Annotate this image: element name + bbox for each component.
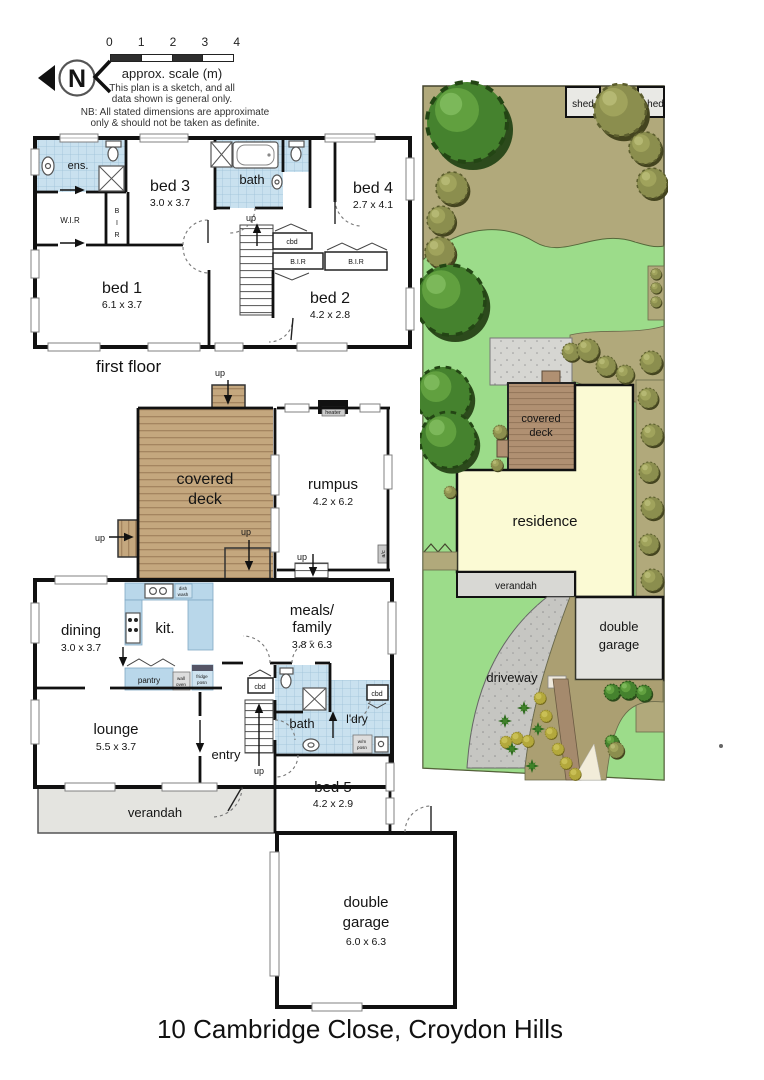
room-label-bath: bath [239, 172, 264, 187]
deck-bottom-steps [225, 548, 270, 580]
ensuite-shower-icon [99, 166, 124, 191]
wall-oven-label2: oven [176, 682, 186, 687]
stray-dot [719, 744, 723, 748]
room-label-meals1: meals/ [290, 602, 335, 619]
deck-label-line1: covered [177, 471, 234, 488]
bathtub-icon [233, 142, 278, 168]
scale-segment [111, 55, 141, 61]
ac-label: a/c [381, 550, 387, 558]
site-verandah-label: verandah [495, 581, 537, 592]
entry-label: entry [212, 747, 241, 762]
site-deck-label2: deck [529, 427, 553, 439]
up-label: up [95, 533, 105, 543]
heater-label: heater [325, 410, 341, 416]
garage-door [270, 852, 279, 976]
trough-icon [375, 737, 388, 752]
room-dims-bed3: 3.0 x 3.7 [150, 197, 190, 209]
wm-label2: posn [357, 745, 367, 750]
deck-label-line2: deck [188, 491, 223, 508]
room-dims-lounge: 5.5 x 3.7 [96, 741, 136, 753]
garage-label2: garage [343, 914, 390, 931]
up-label: up [297, 552, 307, 562]
bir-letter: R [114, 232, 119, 239]
fridge-label1: fridge [196, 674, 208, 679]
driveway-label: driveway [486, 670, 538, 685]
site-garage-label2: garage [599, 637, 639, 652]
scale-ticks: 0 1 2 3 4 [106, 35, 240, 49]
scale-tick: 3 [201, 35, 208, 49]
room-label-meals2: family [292, 619, 332, 636]
north-arrowhead [38, 65, 55, 91]
nb-note: NB: All stated dimensions are approximat… [55, 107, 295, 129]
bath-shower-icon [211, 142, 232, 167]
scale-tick: 0 [106, 35, 113, 49]
site-deck-steps [497, 440, 508, 457]
garage-label1: double [343, 894, 388, 911]
residence-label: residence [512, 513, 577, 530]
room-label-rumpus: rumpus [308, 476, 358, 493]
sketch-note-line1: This plan is a sketch, and all [92, 83, 252, 94]
room-label-laundry: l'dry [346, 712, 368, 726]
site-deck-steps [542, 371, 560, 383]
stairs-up-label: up [246, 213, 256, 223]
cbd-label: cbd [286, 239, 297, 246]
bir-label: B.I.R [348, 259, 364, 266]
cbd-label: cbd [254, 684, 265, 691]
room-label-ens: ens. [68, 160, 89, 172]
verandah-label: verandah [128, 805, 182, 820]
scale-segment [141, 55, 172, 61]
room-label-kitchen: kit. [155, 620, 174, 637]
ground-floor-plan: up covered deck up up up heater a/c rump… [30, 360, 460, 1015]
garage-dims: 6.0 x 6.3 [346, 936, 386, 948]
site-garage-label1: double [599, 619, 638, 634]
fridge-label2: posn [197, 680, 207, 685]
room-label-bed3: bed 3 [150, 178, 190, 195]
scale-tick: 4 [233, 35, 240, 49]
room-label-bath: bath [289, 716, 314, 731]
room-label-wir: W.I.R [60, 216, 80, 225]
room-dims-rumpus: 4.2 x 6.2 [313, 496, 353, 508]
rumpus-steps [295, 563, 328, 580]
room-label-bed1: bed 1 [102, 280, 142, 297]
scale-segment [202, 55, 233, 61]
bath-basin-icon [272, 175, 282, 189]
scale-segment [172, 55, 203, 61]
room-label-bed4: bed 4 [353, 180, 393, 197]
laundry-cbd-label: cbd [371, 691, 382, 698]
room-dims-dining: 3.0 x 3.7 [61, 642, 101, 654]
nb-note-line1: NB: All stated dimensions are approximat… [55, 107, 295, 118]
sketch-note: This plan is a sketch, and all data show… [92, 83, 252, 105]
scale-label: approx. scale (m) [92, 66, 252, 81]
bir-label: B.I.R [290, 259, 306, 266]
room-dims-bed1: 6.1 x 3.7 [102, 299, 142, 311]
up-label: up [241, 527, 251, 537]
dishwasher-label1: dish [179, 586, 188, 591]
room-label-bed2: bed 2 [310, 290, 350, 307]
floor-plan-page: N 0 1 2 3 4 approx. scale (m) This plan … [0, 0, 764, 1080]
room-dims-bed2: 4.2 x 2.8 [310, 309, 350, 321]
nb-note-line2: only & should not be taken as definite. [55, 118, 295, 129]
site-deck-label1: covered [521, 413, 560, 425]
bir-letter: B [115, 208, 120, 215]
wall-oven-label1: wall [177, 676, 185, 681]
basin-icon [303, 739, 319, 751]
shed-label: shed [572, 99, 594, 110]
site-plan: shed shed [420, 80, 668, 785]
wm-label1: w/m [358, 739, 367, 744]
scale-tick: 2 [170, 35, 177, 49]
room-dims-meals: 3.8 x 6.3 [292, 639, 332, 651]
shower-icon [303, 688, 326, 710]
deck-left-steps [118, 520, 138, 557]
north-letter: N [68, 65, 86, 93]
cooktop-icon [126, 613, 140, 643]
room-label-dining: dining [61, 622, 101, 639]
scale-tick: 1 [138, 35, 145, 49]
bir-letter: I [116, 220, 118, 227]
ensuite-basin-icon [42, 157, 54, 175]
scale-bar [110, 54, 234, 62]
dishwasher-label2: wash [178, 592, 189, 597]
room-dims-bed4: 2.7 x 4.1 [353, 199, 393, 211]
washing-machine-box [353, 735, 372, 753]
gate-area [423, 552, 457, 570]
up-label: up [215, 368, 225, 378]
pantry-label: pantry [138, 676, 160, 685]
sketch-note-line2: data shown is general only. [92, 94, 252, 105]
room-label-bed5: bed 5 [314, 779, 352, 796]
first-floor-plan: ens. W.I.R B I R bed 3 3.0 x 3.7 bath be… [30, 130, 415, 380]
room-dims-bed5: 4.2 x 2.9 [313, 798, 353, 810]
fridge-top [192, 665, 213, 671]
room-label-lounge: lounge [93, 721, 138, 738]
up-label: up [254, 766, 264, 776]
page-title: 10 Cambridge Close, Croydon Hills [0, 1014, 720, 1045]
